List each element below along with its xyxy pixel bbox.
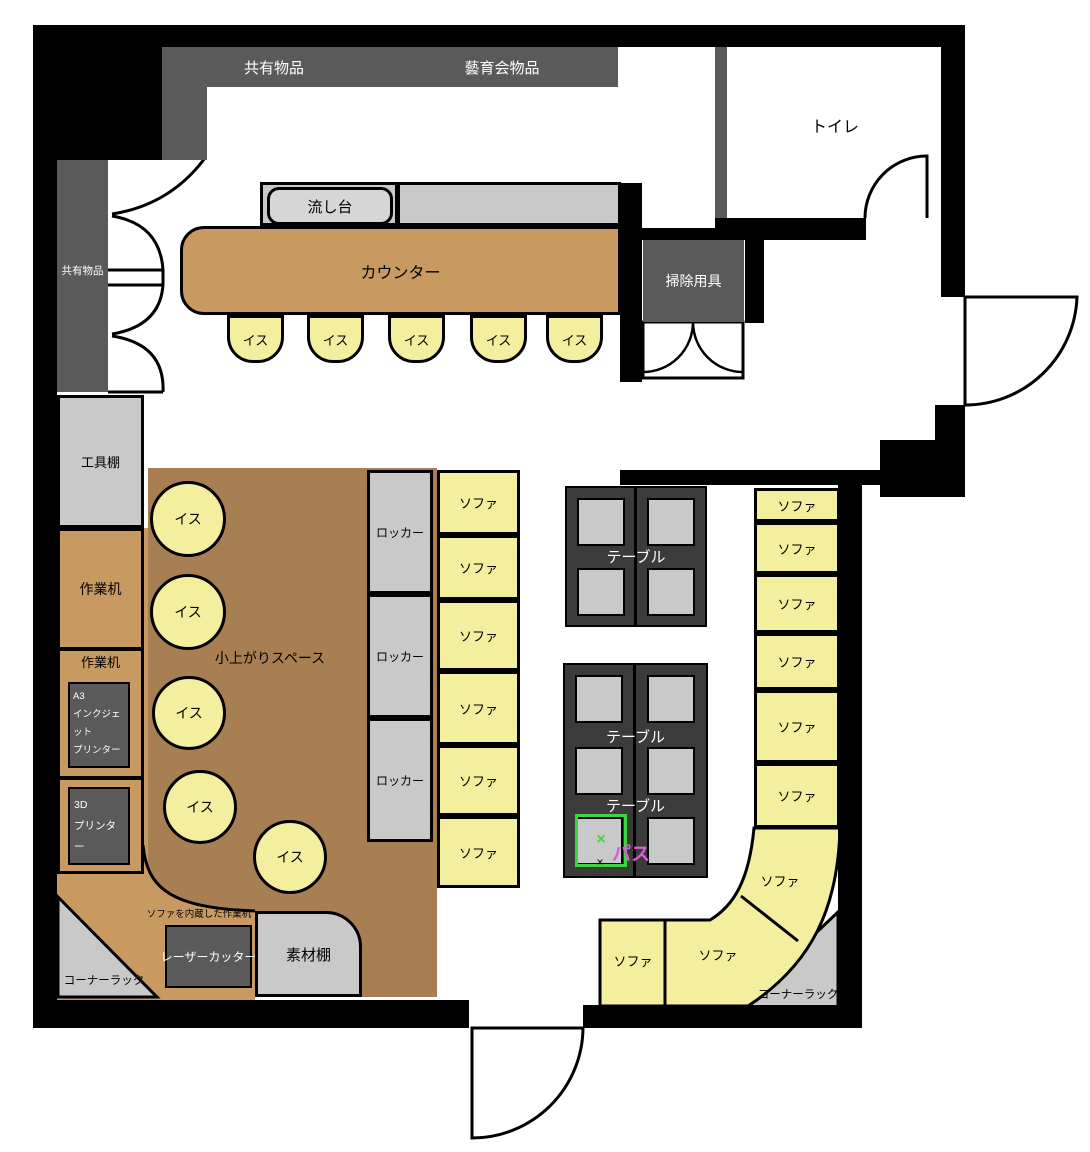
sink: 流し台 xyxy=(267,187,393,225)
locker: ロッカー xyxy=(367,718,433,842)
corner-rack-left-label: コーナーラック xyxy=(58,972,150,988)
sofa: ソファ xyxy=(437,470,520,535)
counter-chair: イス xyxy=(546,315,603,363)
counter: カウンター xyxy=(180,226,621,315)
table-seat xyxy=(647,675,695,723)
sofa: ソファ xyxy=(754,690,840,763)
wall-topleft-block xyxy=(33,25,162,160)
floor-chair: イス xyxy=(150,481,226,557)
plan-lines-layer xyxy=(0,0,1090,1152)
sofa: ソファ xyxy=(437,745,520,816)
3d-printer-line: プリンター xyxy=(74,816,124,858)
wall-right-step xyxy=(880,440,965,497)
tool-shelf: 工具棚 xyxy=(57,395,144,528)
work-desk-1: 作業机 xyxy=(57,528,144,650)
wall-left xyxy=(33,25,57,1028)
table-seat xyxy=(577,498,625,546)
sofa: ソファ xyxy=(754,633,840,690)
floor-plan: 共有物品 藝育会物品 共有物品 トイレ 掃除用具 流し台 カウンター イス イス… xyxy=(0,0,1090,1152)
entry-door-bottom xyxy=(472,1028,583,1138)
wall-inner-vertical xyxy=(838,485,862,1010)
wall-counter-right xyxy=(620,183,642,382)
sofa: ソファ xyxy=(437,535,520,600)
sofa-curved-label: ソファ xyxy=(690,944,746,964)
floor-chair: イス xyxy=(152,676,226,750)
sofa: ソファ xyxy=(754,522,840,574)
wall-closet-top xyxy=(628,228,764,240)
table-seat xyxy=(647,568,695,616)
wall-right-upper xyxy=(941,25,965,297)
table-seat xyxy=(575,675,623,723)
table-2-label: テーブル xyxy=(563,795,708,815)
sofa: ソファ xyxy=(437,816,520,888)
floor-chair: イス xyxy=(163,770,237,844)
wall-top xyxy=(33,25,965,47)
wall-bottom-left xyxy=(33,1000,469,1028)
sofa: ソファ xyxy=(437,671,520,745)
toilet-partition xyxy=(715,47,727,218)
table-1-label: テーブル xyxy=(565,546,707,566)
table-seat xyxy=(577,568,625,616)
table-2-label: テーブル xyxy=(563,726,708,746)
sofa-curved-label: ソファ xyxy=(752,870,808,890)
a3-printer-line: A3 xyxy=(73,688,125,706)
locker: ロッカー xyxy=(367,470,433,594)
locker: ロッカー xyxy=(367,594,433,718)
sofa: ソファ xyxy=(754,574,840,633)
floor-chair: イス xyxy=(253,820,327,894)
counter-chair: イス xyxy=(388,315,445,363)
toilet-door xyxy=(865,156,927,218)
floor-chair: イス xyxy=(150,574,226,650)
counter-chair: イス xyxy=(470,315,527,363)
sofa-curved-label: ソファ xyxy=(605,950,661,970)
entry-door-right xyxy=(965,297,1077,405)
table-seat xyxy=(647,498,695,546)
shelf-geiiku-items: 藝育会物品 xyxy=(386,47,618,87)
a3-printer-line: プリンター xyxy=(73,742,125,760)
pass-label: パス xyxy=(606,840,656,864)
3d-printer: 3D プリンター xyxy=(68,787,130,865)
shelf-top-left-leg xyxy=(162,47,207,160)
sofa: ソファ xyxy=(754,763,840,828)
material-shelf: 素材棚 xyxy=(255,911,362,997)
work-desk-2-label: 作業机 xyxy=(57,652,144,670)
corner-rack-right-label: コーナーラック xyxy=(756,986,840,1002)
counter-chair: イス xyxy=(227,315,284,363)
laser-cutter: レーザーカッター xyxy=(165,925,252,988)
sofa: ソファ xyxy=(437,600,520,671)
counter-back-shelf-right xyxy=(397,182,621,226)
wall-inner-horizontal xyxy=(620,470,882,485)
counter-chair: イス xyxy=(307,315,364,363)
table-seat xyxy=(647,747,695,795)
shelf-shared-items-left-label: 共有物品 xyxy=(57,262,108,278)
table-seat xyxy=(575,747,623,795)
wall-bottom-right xyxy=(583,1005,862,1028)
toilet-label: トイレ xyxy=(795,114,875,136)
wall-right-stub xyxy=(935,405,965,445)
raised-floor-label: 小上がりスペース xyxy=(205,648,335,668)
cleaning-supplies-closet: 掃除用具 xyxy=(643,240,744,322)
a3-printer-line: インクジェット xyxy=(73,706,125,742)
sofa-builtin-desk-label: ソファを内蔵した作業机 xyxy=(145,906,253,919)
a3-inkjet-printer: A3 インクジェット プリンター xyxy=(68,682,130,768)
sofa: ソファ xyxy=(754,488,840,522)
wall-closet-right xyxy=(745,228,764,323)
3d-printer-line: 3D xyxy=(74,795,124,816)
